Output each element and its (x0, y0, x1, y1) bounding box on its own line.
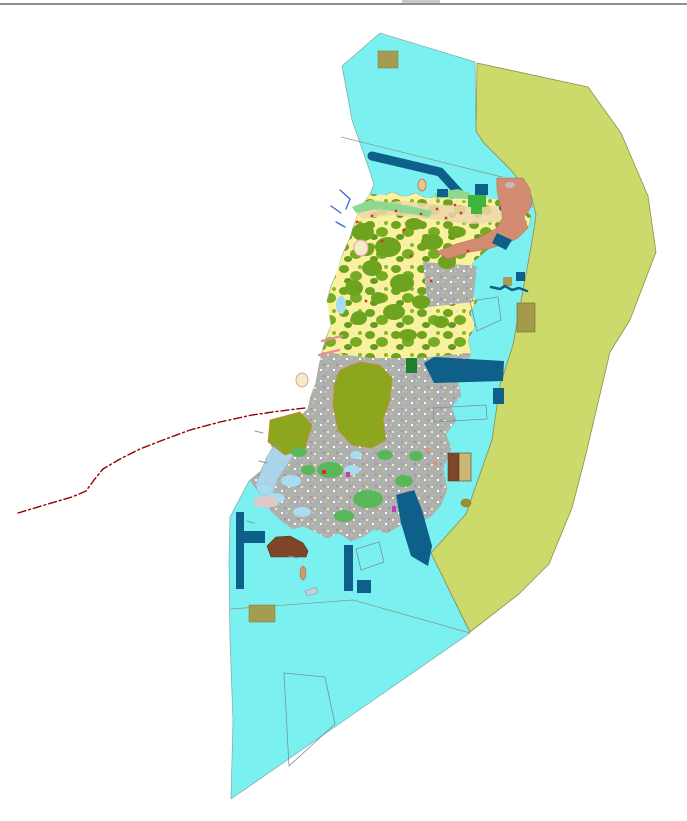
red-dots (454, 204, 457, 207)
pond-patches (257, 485, 271, 493)
south-green-patches (409, 451, 423, 461)
navy-square-east (516, 272, 525, 281)
forest-blobs (375, 237, 401, 257)
coast-circle-outline-2 (296, 373, 308, 387)
salmon-gray-ellipse (505, 182, 515, 188)
red-dots (467, 250, 470, 253)
red-dots (445, 217, 448, 220)
dark-green-rect (406, 358, 417, 373)
pale-blob (253, 496, 279, 508)
salmon-bits (433, 461, 437, 465)
red-dots (371, 215, 374, 218)
red-dots (381, 240, 384, 243)
tan-figure (300, 566, 306, 580)
forest-blobs (390, 274, 414, 292)
magenta-dot-2 (346, 472, 350, 477)
compound-se-tan (459, 453, 471, 481)
jetty-t-arm (244, 531, 265, 543)
south-green-patches (395, 475, 413, 487)
red-dots (356, 221, 359, 224)
map-viewport[interactable] (0, 0, 687, 821)
olive-square-east (503, 277, 512, 286)
compound-se-brown (448, 453, 459, 481)
south-green-patches (334, 510, 354, 522)
forest-blobs (412, 295, 430, 309)
salmon-bits (425, 448, 429, 452)
khaki-square-south (249, 605, 275, 622)
south-green-patches (291, 447, 307, 457)
forest-blobs (351, 311, 367, 325)
navy-rect-ne-2 (437, 189, 448, 197)
khaki-square-north (378, 51, 398, 68)
stream-lines (331, 206, 341, 213)
stream-lines (340, 190, 350, 199)
harbor-basin (424, 357, 504, 383)
map-svg (0, 0, 687, 821)
pier-south-square (357, 580, 371, 593)
red-dots (403, 229, 406, 232)
south-green-patches (377, 450, 393, 460)
forest-blobs (345, 280, 363, 296)
south-green-patches (301, 465, 315, 475)
tan-dot-north (418, 179, 426, 191)
forest-blobs (421, 234, 443, 250)
stream-lines (336, 222, 345, 227)
red-dots (460, 212, 463, 215)
forest-blobs (362, 260, 382, 276)
pond-patches (336, 296, 346, 314)
pier-south-strip (344, 545, 353, 591)
red-dots (410, 255, 413, 258)
coast-circle-outline-1 (354, 240, 368, 256)
forest-blobs (352, 223, 374, 241)
jetty-t-vertical (236, 512, 244, 589)
magenta-dot-1 (392, 506, 396, 512)
red-dots (395, 210, 398, 213)
forest-blobs (433, 316, 449, 328)
forest-blobs (383, 304, 405, 320)
red-dot-coast (322, 470, 326, 474)
olive-rect-east (517, 303, 535, 332)
forest-blobs (448, 226, 464, 238)
window-top-border (0, 3, 687, 5)
green-field-ne-2 (471, 207, 482, 214)
island-urban-east (423, 262, 477, 307)
red-dots (365, 300, 368, 303)
olive-dot-se (461, 499, 471, 507)
red-dots (430, 280, 433, 283)
red-dots (420, 213, 423, 216)
pond-patches (293, 507, 311, 517)
green-field-ne-1 (468, 195, 486, 207)
survey-dashes (255, 431, 263, 433)
pond-patches (350, 451, 362, 459)
south-green-patches (317, 462, 343, 478)
forest-blobs (399, 329, 417, 341)
harbor-rect-small (493, 388, 504, 404)
forest-blobs (371, 292, 385, 304)
navy-rect-ne-1 (475, 184, 488, 195)
south-green-patches (353, 490, 383, 508)
pond-patches (281, 475, 301, 487)
stream-lines (346, 199, 350, 209)
red-dots (436, 208, 439, 211)
forest-blobs (405, 218, 423, 230)
